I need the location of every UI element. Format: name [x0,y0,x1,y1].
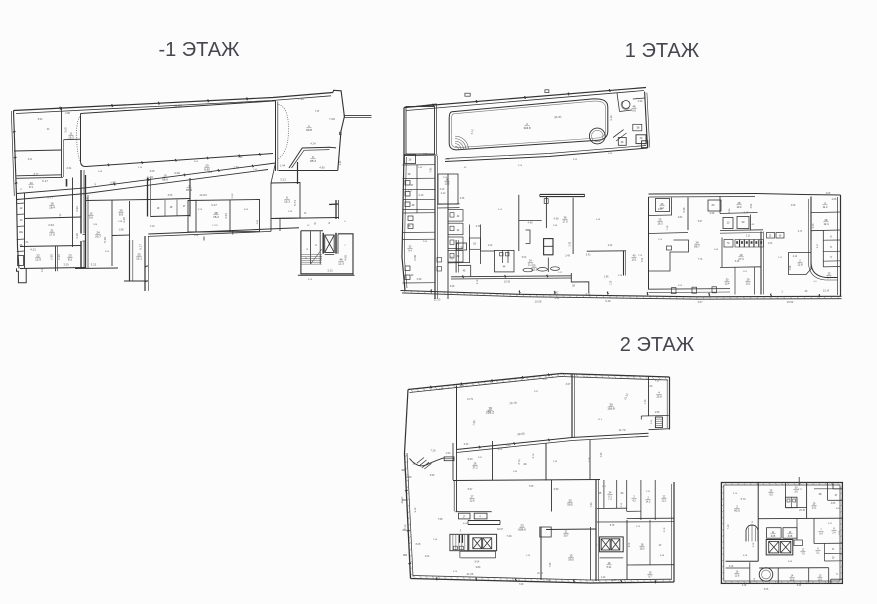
svg-text:68.6: 68.6 [162,178,168,182]
svg-text:6.17: 6.17 [42,179,48,183]
svg-text:15: 15 [90,211,93,215]
svg-text:8.45: 8.45 [416,543,421,546]
svg-text:3.47: 3.47 [817,243,819,248]
svg-text:20 35: 20 35 [799,510,805,512]
svg-text:2.88: 2.88 [655,412,660,414]
svg-text:7.58: 7.58 [438,518,443,521]
svg-text:3.23: 3.23 [327,269,333,273]
svg-text:2.98: 2.98 [65,112,70,115]
svg-text:18.3: 18.3 [640,548,645,551]
svg-text:5.40: 5.40 [464,444,469,446]
svg-text:30.7: 30.7 [564,535,569,538]
svg-text:10.2: 10.2 [736,205,742,209]
svg-text:3.21: 3.21 [280,178,286,182]
svg-text:2.11: 2.11 [793,255,798,258]
svg-text:2.87: 2.87 [439,388,444,391]
svg-text:3.41: 3.41 [586,253,591,256]
svg-text:4.77: 4.77 [47,196,53,200]
svg-text:13.79: 13.79 [509,401,517,406]
svg-text:2.47: 2.47 [744,212,749,215]
svg-text:2.31: 2.31 [66,166,72,170]
svg-text:14.98: 14.98 [414,254,417,261]
svg-text:3.21: 3.21 [91,263,97,267]
svg-text:7.39: 7.39 [238,157,243,159]
svg-text:4.53: 4.53 [24,242,29,244]
svg-text:7.26: 7.26 [666,225,669,230]
svg-text:3.28: 3.28 [122,217,126,223]
svg-text:6.29: 6.29 [605,299,611,303]
svg-text:4.65: 4.65 [831,503,836,505]
svg-text:2.20: 2.20 [488,245,493,247]
svg-text:3.02: 3.02 [812,508,817,510]
svg-text:2.96: 2.96 [604,276,609,279]
svg-text:10.93: 10.93 [504,281,511,284]
svg-text:6.59: 6.59 [554,488,559,491]
svg-text:25.8: 25.8 [656,395,662,399]
svg-text:3.05: 3.05 [771,536,776,538]
svg-text:9.45: 9.45 [414,507,417,512]
svg-text:90.5: 90.5 [734,509,740,513]
svg-text:269.2: 269.2 [486,411,494,415]
svg-text:4.61: 4.61 [256,219,259,224]
svg-text:17.0: 17.0 [562,220,568,224]
svg-text:7.26: 7.26 [506,534,512,538]
svg-text:1.93: 1.93 [768,243,773,245]
svg-text:-1 ЭТАЖ: -1 ЭТАЖ [158,39,240,61]
svg-text:3.92: 3.92 [60,213,62,218]
svg-text:3.46: 3.46 [729,566,734,568]
svg-text:9.60: 9.60 [467,457,473,461]
svg-text:3.27: 3.27 [211,203,217,207]
svg-text:9.84: 9.84 [476,566,481,569]
svg-text:4.06: 4.06 [826,193,831,195]
svg-text:8.90: 8.90 [38,119,43,121]
svg-text:4.08: 4.08 [791,205,796,207]
svg-text:12.8: 12.8 [470,500,475,503]
svg-text:1.41: 1.41 [452,255,454,260]
svg-text:1 ЭТАЖ: 1 ЭТАЖ [625,40,700,62]
svg-text:5.40: 5.40 [506,444,511,447]
svg-text:2 ЭТАЖ: 2 ЭТАЖ [620,334,695,356]
svg-text:7.06: 7.06 [529,485,534,488]
svg-text:2.85: 2.85 [50,254,54,260]
svg-text:1.25: 1.25 [600,452,603,457]
svg-text:8.78: 8.78 [517,459,521,465]
svg-text:14.63: 14.63 [199,193,207,197]
svg-text:4.08: 4.08 [832,198,837,201]
svg-text:87.4: 87.4 [186,188,192,192]
svg-text:3.05: 3.05 [168,194,173,197]
svg-text:4.21: 4.21 [30,248,36,252]
svg-text:13.6: 13.6 [735,575,740,578]
svg-text:16.3: 16.3 [68,136,74,140]
svg-text:25: 25 [533,263,536,267]
svg-text:4.90: 4.90 [110,180,116,184]
svg-text:3.08: 3.08 [788,536,793,538]
svg-text:8.10: 8.10 [664,527,666,532]
svg-text:4.93: 4.93 [422,152,428,156]
svg-text:7.8: 7.8 [315,109,320,113]
svg-text:8.78: 8.78 [532,453,535,458]
svg-text:37.2: 37.2 [472,466,478,470]
svg-text:4.36: 4.36 [553,217,559,221]
svg-text:12.9: 12.9 [35,258,41,262]
svg-text:9.98: 9.98 [710,212,715,215]
svg-text:1.44: 1.44 [280,164,286,168]
svg-text:4.54: 4.54 [48,223,54,227]
svg-text:13.6: 13.6 [445,183,450,186]
svg-text:3.05: 3.05 [150,170,155,173]
svg-text:3.28: 3.28 [753,542,755,547]
svg-text:17.0: 17.0 [49,233,55,237]
svg-text:2.46: 2.46 [445,159,450,161]
svg-text:31.39: 31.39 [174,103,182,107]
svg-text:8.77: 8.77 [34,173,39,176]
svg-text:9.48: 9.48 [609,115,613,121]
svg-text:6.19: 6.19 [477,279,479,284]
svg-text:4.02: 4.02 [629,542,631,547]
svg-text:8.2: 8.2 [68,258,73,262]
svg-text:5.46: 5.46 [735,261,740,263]
svg-text:10.08: 10.08 [535,300,542,304]
svg-text:4.83: 4.83 [678,217,683,219]
svg-text:4.63: 4.63 [224,213,228,219]
svg-text:15.3: 15.3 [284,200,290,204]
svg-text:59.5: 59.5 [567,503,573,507]
svg-text:13.14: 13.14 [823,290,830,293]
svg-text:2.42: 2.42 [608,245,613,247]
svg-text:156.8: 156.8 [607,407,615,411]
svg-text:12.8: 12.8 [797,263,803,267]
svg-text:608.6: 608.6 [518,528,526,532]
svg-text:3.00: 3.00 [174,171,180,175]
svg-text:2.85: 2.85 [42,267,44,272]
svg-text:5.97: 5.97 [698,221,703,223]
svg-text:7.85: 7.85 [472,420,476,426]
svg-text:2.71: 2.71 [798,231,803,233]
svg-text:5.70: 5.70 [741,498,746,501]
svg-text:3.67: 3.67 [566,383,571,386]
svg-text:5.02: 5.02 [522,257,527,259]
svg-text:4.48: 4.48 [742,585,747,587]
svg-text:5.28: 5.28 [103,237,107,243]
svg-text:9.4: 9.4 [827,277,831,280]
svg-text:8.65: 8.65 [204,168,210,172]
svg-text:10.4: 10.4 [725,283,730,286]
svg-text:7.74: 7.74 [698,258,703,261]
svg-text:1.98: 1.98 [118,228,124,232]
svg-text:6.98: 6.98 [797,585,802,587]
svg-text:7.00: 7.00 [546,579,551,582]
svg-text:7.81: 7.81 [429,167,433,173]
svg-text:7.20: 7.20 [727,524,730,530]
svg-text:8.9: 8.9 [119,213,124,217]
svg-text:5.41: 5.41 [607,566,612,569]
svg-text:3.43: 3.43 [440,188,445,191]
svg-text:1.41: 1.41 [339,160,342,165]
svg-text:3.35: 3.35 [75,233,79,239]
svg-text:334.8: 334.8 [524,126,531,130]
svg-text:4.08: 4.08 [789,265,792,270]
svg-text:2.36: 2.36 [476,226,481,228]
svg-text:3.99: 3.99 [450,286,455,288]
svg-text:4.41: 4.41 [28,159,33,161]
svg-text:7.43: 7.43 [590,502,593,507]
svg-text:Wa: Wa [19,231,23,234]
svg-text:3.08: 3.08 [64,127,68,133]
svg-text:1.10: 1.10 [150,225,155,228]
svg-text:2.05: 2.05 [568,241,571,246]
svg-text:36: 36 [564,215,567,219]
svg-text:2.49: 2.49 [565,255,570,258]
svg-text:15.2: 15.2 [213,215,219,219]
svg-text:18.4: 18.4 [49,206,55,210]
svg-text:3.99: 3.99 [417,278,422,281]
svg-text:13.79: 13.79 [467,399,473,401]
svg-text:113.6: 113.6 [531,268,538,272]
svg-text:13.1: 13.1 [662,500,667,503]
svg-text:1.25: 1.25 [610,280,612,285]
svg-text:95.3: 95.3 [310,159,316,163]
svg-text:7.00: 7.00 [329,117,335,121]
svg-text:60.8: 60.8 [306,128,312,132]
svg-text:34.31: 34.31 [554,115,562,120]
svg-text:7.22: 7.22 [298,97,304,101]
svg-text:30.07: 30.07 [400,496,404,503]
svg-text:4.06: 4.06 [320,255,323,260]
svg-text:12.3: 12.3 [338,262,344,266]
svg-text:29.7: 29.7 [95,235,101,239]
svg-text:1.73: 1.73 [644,399,647,404]
svg-text:16.3: 16.3 [657,222,663,226]
svg-text:11.2: 11.2 [823,205,828,209]
svg-text:8.00: 8.00 [612,579,617,582]
svg-text:29.55: 29.55 [517,432,525,437]
svg-text:21.06: 21.06 [467,572,474,576]
svg-text:3.35: 3.35 [460,198,465,200]
svg-text:6.05: 6.05 [764,589,769,591]
svg-text:1.40: 1.40 [601,577,606,579]
svg-text:10.5: 10.5 [790,579,795,582]
svg-text:3.92: 3.92 [75,206,79,212]
svg-text:5.74: 5.74 [293,200,297,206]
svg-text:7.50: 7.50 [404,524,407,530]
svg-text:2.11: 2.11 [746,236,751,238]
svg-text:11.70: 11.70 [619,428,626,432]
svg-text:4.99: 4.99 [655,381,660,383]
svg-text:2.87: 2.87 [460,385,465,388]
svg-text:4.08: 4.08 [344,255,348,261]
svg-text:86.7: 86.7 [694,245,700,249]
svg-text:4.83: 4.83 [658,209,663,211]
svg-text:2.16: 2.16 [419,194,424,197]
svg-text:15.1: 15.1 [136,257,142,261]
svg-text:9.6: 9.6 [632,109,636,113]
svg-text:2.33: 2.33 [231,193,234,198]
svg-text:7.24: 7.24 [641,257,644,262]
svg-text:3.52: 3.52 [750,203,753,208]
svg-text:3.29: 3.29 [63,263,69,267]
svg-text:6.99: 6.99 [407,476,412,479]
svg-text:2.90: 2.90 [638,100,643,103]
svg-text:9.04: 9.04 [475,561,480,564]
svg-text:7.20: 7.20 [430,449,436,453]
svg-text:7.09: 7.09 [519,583,524,586]
svg-text:59.5: 59.5 [568,558,574,562]
svg-text:4.24: 4.24 [310,142,316,146]
svg-text:4.02: 4.02 [425,556,430,558]
svg-text:6.99: 6.99 [430,475,435,477]
svg-text:30.97: 30.97 [497,528,504,531]
svg-text:3.43: 3.43 [812,223,815,228]
svg-text:10.1: 10.1 [746,283,751,286]
svg-text:3.07: 3.07 [698,301,703,304]
svg-text:4.90: 4.90 [319,166,325,170]
svg-text:3.67: 3.67 [543,378,548,381]
svg-text:9.17: 9.17 [139,244,143,250]
svg-text:4.46: 4.46 [527,221,533,225]
svg-text:19: 19 [740,253,743,257]
svg-text:14.2: 14.2 [646,501,651,504]
svg-text:12.4: 12.4 [823,222,829,226]
svg-text:16.52: 16.52 [787,300,794,304]
svg-text:9.36: 9.36 [683,207,686,212]
svg-text:10.1: 10.1 [632,259,637,262]
svg-text:2.92: 2.92 [555,297,560,300]
svg-text:12.13: 12.13 [434,298,441,302]
svg-text:7.40: 7.40 [589,457,591,462]
svg-text:17.91: 17.91 [212,225,218,227]
svg-text:5.97: 5.97 [468,488,473,491]
svg-text:9.78: 9.78 [610,525,615,527]
svg-text:8.1: 8.1 [29,185,33,189]
svg-text:9.98: 9.98 [729,208,731,213]
svg-text:7.45: 7.45 [549,562,552,567]
svg-text:5.6: 5.6 [89,216,93,220]
svg-text:4.12: 4.12 [441,192,446,195]
svg-text:1.50: 1.50 [446,452,451,455]
svg-text:21.06: 21.06 [537,573,543,575]
